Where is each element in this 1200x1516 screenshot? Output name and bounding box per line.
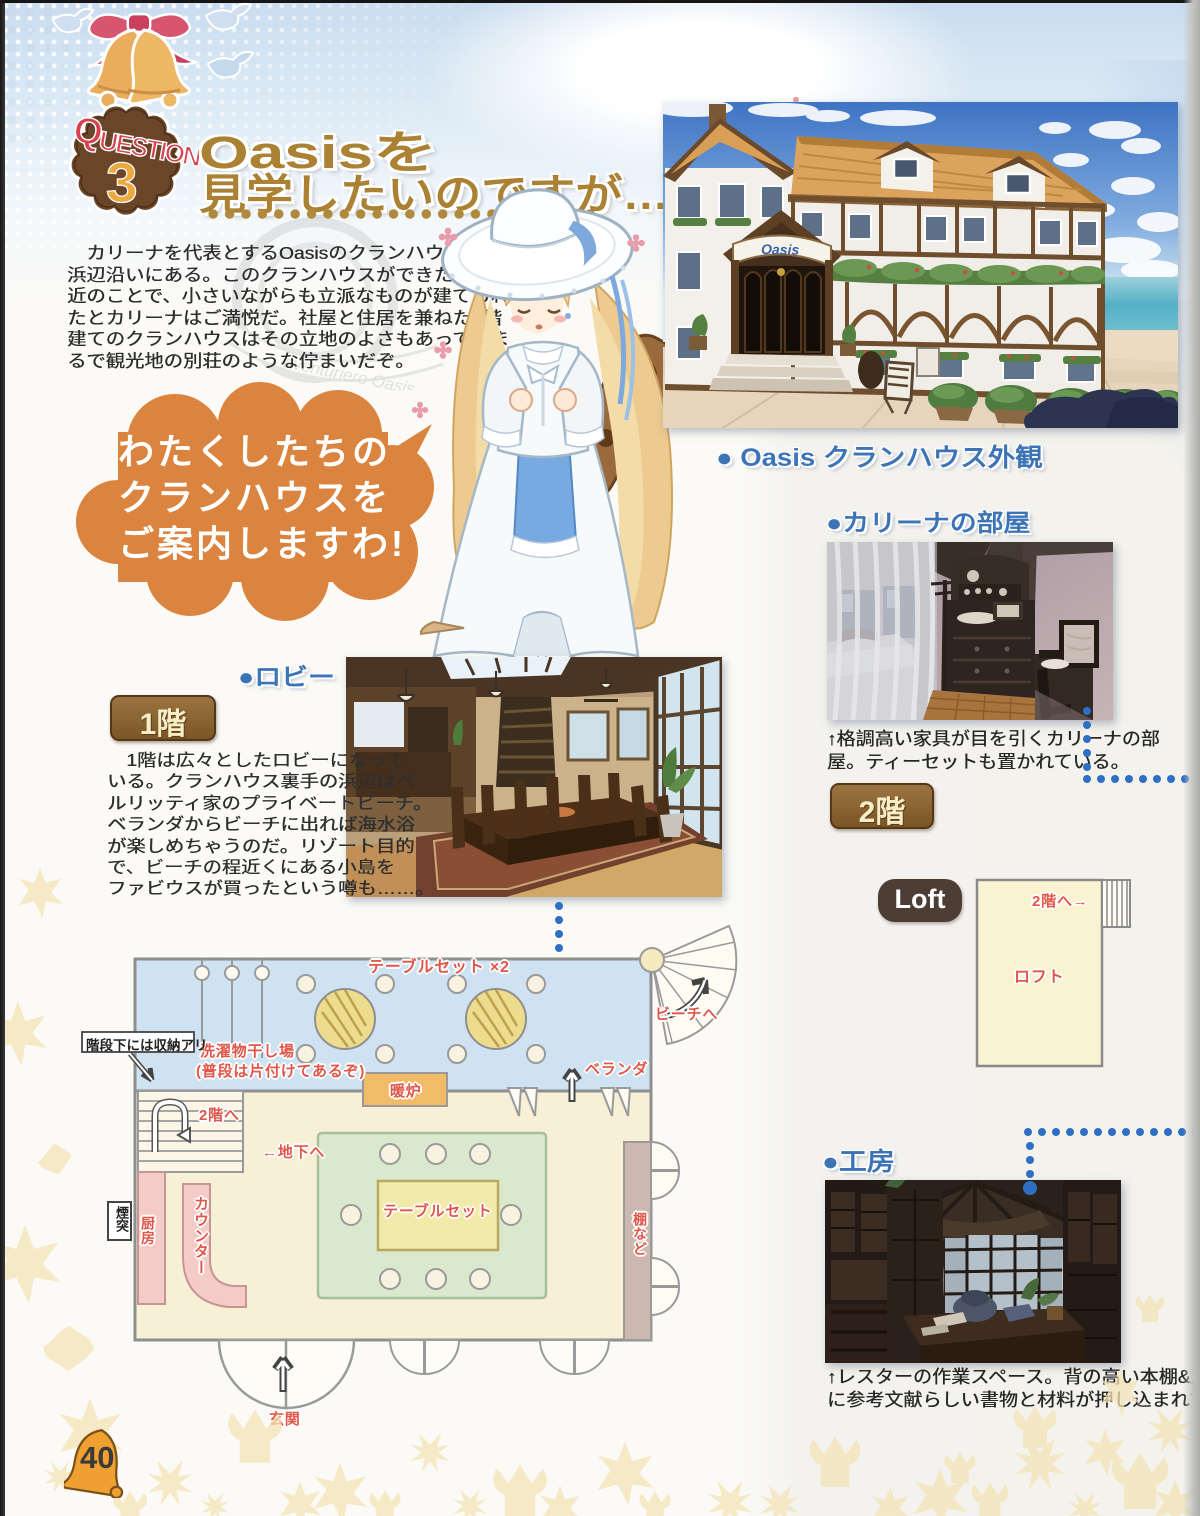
svg-text:Oasis: Oasis [761, 241, 800, 258]
